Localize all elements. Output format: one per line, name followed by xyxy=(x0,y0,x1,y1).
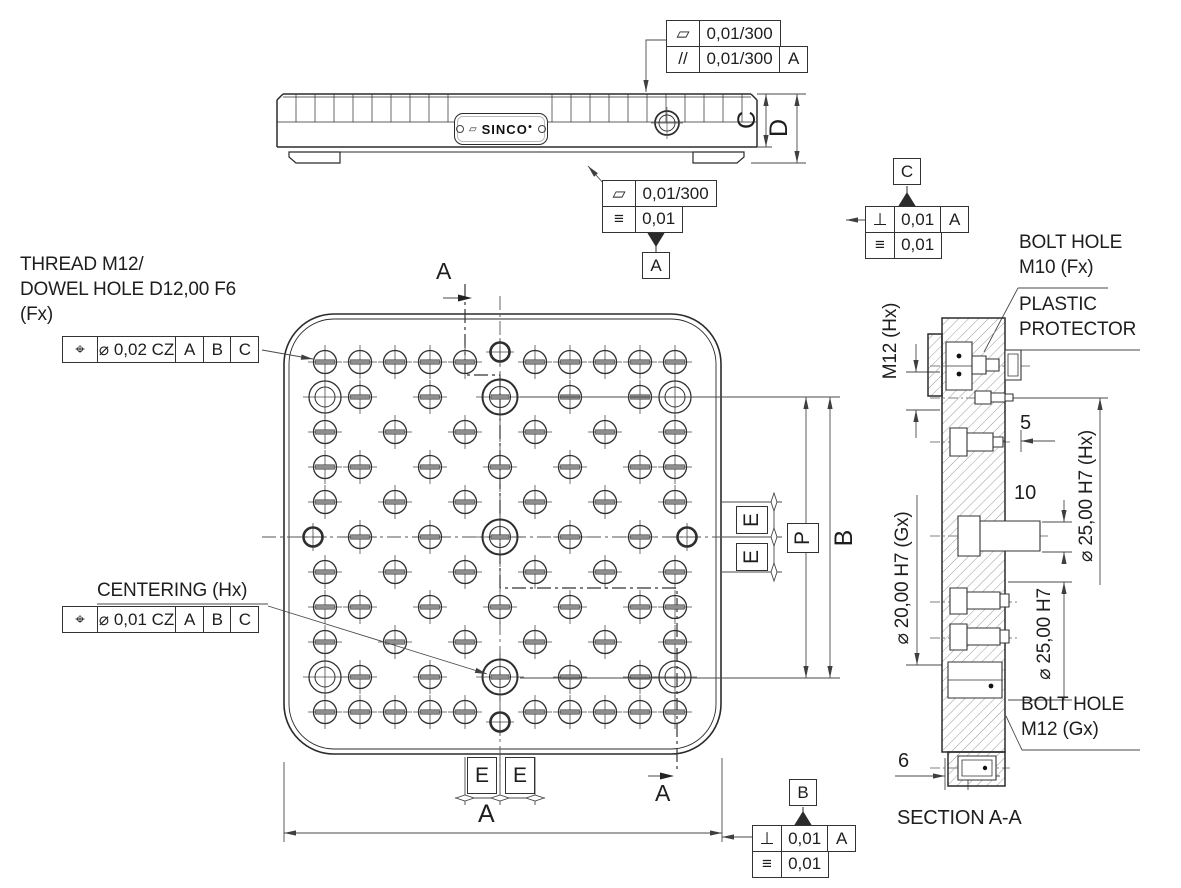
fcf-pos-center-datum-c: C xyxy=(230,606,259,633)
datum-flag-a: A xyxy=(642,252,670,279)
fcf-bottom-datum-a: A xyxy=(827,825,856,852)
fcf-position-centering: ⌖ ⌀ 0,01 CZ A B C xyxy=(62,606,259,633)
position-icon: ⌖ xyxy=(62,606,98,633)
hole-grid xyxy=(299,338,701,736)
fcf-right-perp-value: 0,01 xyxy=(894,206,942,233)
fcf-top-datum-a: A xyxy=(779,46,808,73)
drawing-linework xyxy=(0,0,1181,888)
dim-bore-25-h7: ⌀ 25,00 H7 xyxy=(1033,579,1055,689)
dim-pitch-b: B xyxy=(830,527,858,549)
bolt-m12-line2: M12 (Gx) xyxy=(1021,717,1124,742)
thread-note-line3: (Fx) xyxy=(20,302,236,327)
dim-e-bottom-1: E xyxy=(475,764,489,788)
thread-dowel-note: THREAD M12/ DOWEL HOLE D12,00 F6 (Fx) xyxy=(20,252,236,327)
logo-parallelogram-icon: ▱ xyxy=(469,124,477,135)
perpendicularity-icon: ⊥ xyxy=(865,206,895,233)
flatness-icon: ▱ xyxy=(602,180,636,207)
bolt-m10-line2: M10 (Fx) xyxy=(1019,255,1122,280)
fcf-pos-thread-datum-c: C xyxy=(230,336,259,363)
centering-note: CENTERING (Hx) xyxy=(97,578,247,603)
fcf-right-datum-a: A xyxy=(940,206,969,233)
datum-flag-b: B xyxy=(789,779,817,806)
symmetry-icon: ≡ xyxy=(602,206,636,233)
fcf-section-top: ⊥ 0,01 A ≡ 0,01 xyxy=(865,206,969,259)
dim-thickness-c: C xyxy=(733,109,761,131)
fcf-pos-thread-datum-a: A xyxy=(175,336,204,363)
bolt-m10-line1: BOLT HOLE xyxy=(1019,230,1122,255)
fcf-pos-center-datum-b: B xyxy=(203,606,232,633)
fcf-pos-center-value: ⌀ 0,01 CZ xyxy=(97,606,177,633)
dim-e-right-2-box: E xyxy=(736,543,768,571)
dim-pitch-p-box: P xyxy=(787,523,819,553)
thread-note-line1: THREAD M12/ xyxy=(20,252,236,277)
section-title: SECTION A-A xyxy=(897,806,1022,831)
dim-height-d: D xyxy=(765,117,793,139)
dim-e-bottom-1-box: E xyxy=(467,757,497,794)
fcf-pos-thread-value: ⌀ 0,02 CZ xyxy=(97,336,177,363)
dim-overall-a: A xyxy=(478,800,495,829)
fcf-pos-thread-datum-b: B xyxy=(203,336,232,363)
position-icon: ⌖ xyxy=(62,336,98,363)
section-arrow-label-bottom: A xyxy=(655,780,670,807)
bolt-hole-m12-label: BOLT HOLE M12 (Gx) xyxy=(1021,692,1124,742)
dim-e-right-1-box: E xyxy=(736,506,768,534)
dim-6: 6 xyxy=(898,750,909,773)
fcf-top-row-parallelism: // 0,01/300 A xyxy=(666,46,808,73)
fcf-bottom-perp-value: 0,01 xyxy=(781,825,829,852)
fcf-bottom-value: 0,01 xyxy=(781,851,829,878)
dim-bore-25-h7-hx: ⌀ 25,00 H7 (Hx) xyxy=(1075,416,1097,576)
dim-e-right-2: E xyxy=(740,550,764,564)
bolt-hole-m10-label: BOLT HOLE M10 (Fx) xyxy=(1019,230,1122,280)
thread-note-line2: DOWEL HOLE D12,00 F6 xyxy=(20,277,236,302)
logo-screw-right xyxy=(538,125,546,133)
datum-flag-c: C xyxy=(893,158,921,185)
dim-e-right-1: E xyxy=(740,513,764,527)
fcf-top-surface: ▱ 0,01/300 // 0,01/300 A xyxy=(666,20,808,73)
parallelism-icon: // xyxy=(666,46,700,73)
fcf-top-parallelism-value: 0,01/300 xyxy=(699,46,781,73)
protector-line1: PLASTIC xyxy=(1019,292,1136,317)
dim-10: 10 xyxy=(1014,482,1036,505)
fcf-position-thread: ⌖ ⌀ 0,02 CZ A B C xyxy=(62,336,259,363)
dim-m12-hx: M12 (Hx) xyxy=(879,281,901,401)
fcf-front-surface: ▱ 0,01/300 ≡ 0,01 xyxy=(602,180,717,233)
logo-screw-left xyxy=(456,125,464,133)
logo-text: SINCO● xyxy=(482,122,533,137)
perpendicularity-icon: ⊥ xyxy=(752,825,782,852)
dim-5: 5 xyxy=(1020,412,1031,435)
fcf-plate-edge: ⊥ 0,01 A ≡ 0,01 xyxy=(752,825,856,878)
technical-drawing: ▱ 0,01/300 // 0,01/300 A ▱ 0,01/300 ≡ 0,… xyxy=(0,0,1181,888)
dim-e-bottom-2-box: E xyxy=(505,757,535,794)
fcf-top-flatness-value: 0,01/300 xyxy=(699,20,781,47)
fcf-front-value: 0,01 xyxy=(635,206,683,233)
fcf-front-flatness-value: 0,01/300 xyxy=(635,180,717,207)
flatness-icon: ▱ xyxy=(666,20,700,47)
protector-line2: PROTECTOR xyxy=(1019,317,1136,342)
logo-plate: ▱ SINCO● xyxy=(454,113,548,145)
symmetry-icon: ≡ xyxy=(865,232,895,259)
datum-triangles xyxy=(648,186,915,825)
dim-pitch-p: P xyxy=(791,531,815,545)
dim-e-bottom-2: E xyxy=(513,764,527,788)
section-arrow-label-top: A xyxy=(436,258,451,285)
fcf-right-value: 0,01 xyxy=(894,232,942,259)
dim-bore-20-h7-gx: ⌀ 20,00 H7 (Gx) xyxy=(891,498,913,658)
fcf-pos-center-datum-a: A xyxy=(175,606,204,633)
fcf-top-row-flatness: ▱ 0,01/300 xyxy=(666,20,781,47)
plastic-protector-label: PLASTIC PROTECTOR xyxy=(1019,292,1136,342)
bolt-m12-line1: BOLT HOLE xyxy=(1021,692,1124,717)
symmetry-icon: ≡ xyxy=(752,851,782,878)
